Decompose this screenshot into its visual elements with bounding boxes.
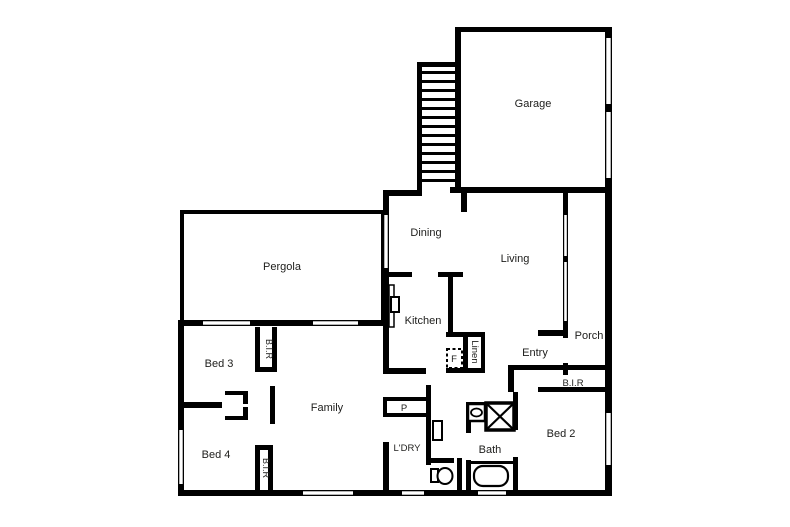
window-frame-line bbox=[563, 262, 564, 321]
window-frame-line bbox=[303, 490, 353, 491]
bed4-bir-left-wall bbox=[255, 445, 260, 496]
pergola-left-wall bbox=[180, 210, 184, 324]
bed2-bir-left-cap bbox=[508, 365, 514, 392]
bathtub bbox=[474, 466, 508, 486]
kitchen-dining-wall-b bbox=[438, 272, 463, 277]
bed3-label: Bed 3 bbox=[205, 358, 234, 370]
window-frame-line bbox=[611, 112, 612, 178]
room-labels: Garage Pergola Dining Living Kitchen Por… bbox=[202, 98, 604, 478]
kitchen-label: Kitchen bbox=[405, 315, 442, 327]
bed3-bed4-divider-wall bbox=[184, 402, 222, 408]
laundry-label: L'DRY bbox=[394, 443, 422, 454]
window-frame-line bbox=[605, 38, 606, 104]
garage-left-wall bbox=[455, 27, 461, 193]
window-frame-line bbox=[478, 495, 506, 496]
window-frame-line bbox=[605, 413, 606, 465]
window-frame-line bbox=[203, 320, 250, 321]
dining-label: Dining bbox=[410, 227, 441, 239]
bed4-bir-top-wall bbox=[255, 445, 273, 450]
living-entry-wall bbox=[538, 330, 567, 336]
stair-tread bbox=[422, 161, 455, 164]
window-frame-line bbox=[178, 430, 179, 484]
kitchen-bottom-wall bbox=[389, 368, 426, 374]
window-frame-line bbox=[611, 413, 612, 465]
garage-top-wall bbox=[455, 27, 612, 32]
garage-bottom-wall bbox=[450, 187, 612, 193]
stairs-top-cap bbox=[417, 62, 457, 67]
toilet-bowl bbox=[438, 468, 453, 484]
window-frame-line bbox=[402, 495, 424, 496]
window-frame-line bbox=[203, 325, 250, 326]
bed2-bir-top-wall bbox=[508, 365, 607, 370]
bathtub-ledge bbox=[471, 461, 515, 464]
wc-east-wall bbox=[457, 458, 462, 490]
door-jamb bbox=[243, 391, 248, 404]
stair-tread bbox=[422, 179, 455, 182]
bed3-bir-bottom-wall bbox=[255, 367, 277, 372]
bottom-outer-wall bbox=[178, 490, 612, 496]
fridge-label: F bbox=[451, 354, 457, 365]
window-frame-line bbox=[605, 112, 606, 178]
bed2-label: Bed 2 bbox=[547, 428, 576, 440]
stair-tread bbox=[422, 71, 455, 74]
window-frame-line bbox=[478, 490, 506, 491]
stairs-left-rail bbox=[417, 62, 422, 192]
family-west-nib-wall bbox=[270, 386, 275, 424]
window-frame-line bbox=[313, 320, 358, 321]
window-frame-line bbox=[402, 490, 424, 491]
stair-tread bbox=[422, 152, 455, 155]
stair-tread bbox=[422, 98, 455, 101]
window-frame-line bbox=[563, 215, 564, 256]
bed3-bir-left-wall bbox=[255, 327, 260, 372]
bath-label: Bath bbox=[479, 444, 502, 456]
bed4-label: Bed 4 bbox=[202, 449, 231, 461]
pergola-top-wall bbox=[180, 210, 385, 214]
stair-tread bbox=[422, 80, 455, 83]
laundry-east-wall bbox=[426, 385, 431, 465]
entry-label: Entry bbox=[522, 347, 548, 359]
stair-tread bbox=[422, 125, 455, 128]
floorplan-canvas: Garage Pergola Dining Living Kitchen Por… bbox=[0, 0, 790, 527]
family-label: Family bbox=[311, 402, 344, 414]
kitchen-dining-wall-a bbox=[389, 272, 412, 277]
stair-tread bbox=[422, 107, 455, 110]
living-dining-stub-wall bbox=[461, 193, 467, 212]
laundry-west-wall bbox=[383, 442, 389, 490]
linen-top-wall bbox=[446, 332, 485, 337]
window-frame-line bbox=[383, 215, 384, 268]
vanity-basin bbox=[471, 409, 482, 417]
stair-tread bbox=[422, 170, 455, 173]
bath-west-wall-lower bbox=[466, 460, 471, 490]
garage-label: Garage bbox=[515, 98, 552, 110]
linen-right-wall bbox=[481, 337, 485, 373]
window-frame-line bbox=[183, 430, 184, 484]
porch-label: Porch bbox=[575, 330, 604, 342]
dining-top-wall bbox=[385, 190, 422, 196]
stair-tread bbox=[422, 116, 455, 119]
bed2-bir-label: B.I.R bbox=[562, 378, 583, 389]
hall-cupboard bbox=[433, 421, 442, 440]
door-jamb bbox=[243, 407, 248, 420]
stair-tread bbox=[422, 143, 455, 146]
pergola-label: Pergola bbox=[263, 261, 302, 273]
pantry-top-wall bbox=[383, 397, 426, 401]
bed3-bir-label: B.I.R bbox=[264, 339, 274, 360]
bed4-bir-label: B.I.R bbox=[261, 458, 271, 479]
pantry-left-cap bbox=[383, 397, 387, 417]
linen-left-wall bbox=[463, 337, 468, 368]
window-frame-line bbox=[313, 325, 358, 326]
linen-label: Linen bbox=[469, 340, 480, 363]
window-frame-line bbox=[388, 215, 389, 268]
window-frame-line bbox=[567, 215, 568, 256]
floorplan-drawing: Garage Pergola Dining Living Kitchen Por… bbox=[0, 0, 790, 527]
kitchen-sink bbox=[391, 297, 399, 312]
bath-east-wall-lower bbox=[513, 457, 518, 490]
window-frame-line bbox=[611, 38, 612, 104]
window-frame-line bbox=[303, 495, 353, 496]
wc-top-wall bbox=[428, 458, 454, 463]
stair-tread bbox=[422, 134, 455, 137]
living-label: Living bbox=[501, 253, 530, 265]
pantry-label: P bbox=[401, 403, 407, 414]
window-frame-line bbox=[567, 262, 568, 321]
stair-tread bbox=[422, 89, 455, 92]
kitchen-east-wall bbox=[448, 277, 453, 334]
